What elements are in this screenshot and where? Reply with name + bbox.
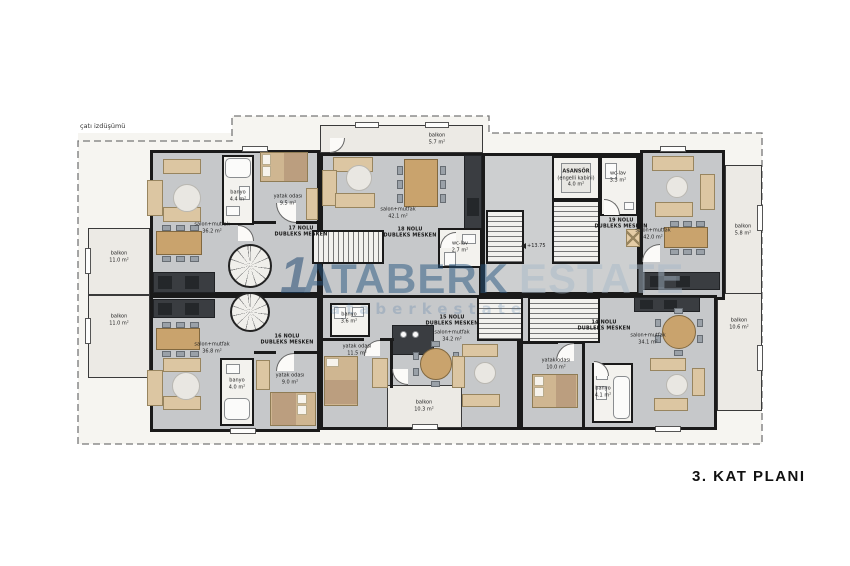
- chair: [440, 194, 446, 203]
- rug: [173, 184, 201, 212]
- chair: [696, 249, 705, 255]
- label-apt17-yatak: yatak odası9.5 m²: [274, 194, 303, 207]
- common-stairs: [486, 210, 524, 264]
- label-apt16-balkon: balkon11.0 m²: [109, 314, 129, 327]
- chair: [162, 256, 171, 262]
- chair: [162, 225, 171, 231]
- window-marker: [757, 205, 763, 231]
- dining-table: [156, 328, 200, 350]
- sofa: [335, 193, 375, 208]
- sofa: [147, 180, 163, 216]
- chair: [176, 351, 185, 357]
- wall: [390, 338, 393, 388]
- dining-table: [420, 348, 452, 380]
- spiral-stairs: [228, 244, 272, 288]
- stove: [158, 303, 172, 315]
- spiral-stairs: [230, 292, 270, 332]
- stove: [467, 198, 479, 216]
- rug: [172, 372, 200, 400]
- label-apt18-salon: salon+mutfak42.1 m²: [380, 207, 415, 220]
- label-apt16-banyo: banyo4.0 m²: [229, 378, 245, 391]
- label-elevator: ASANSÖR(engelli kabini)4.0 m²: [557, 168, 594, 188]
- sofa: [654, 398, 688, 411]
- balcony-apt14: [717, 293, 762, 411]
- balcony-apt16: [88, 295, 150, 378]
- chair: [162, 351, 171, 357]
- label-apt15-salon: salon+mutfak34.2 m²: [434, 330, 469, 343]
- sink-unit: [185, 276, 199, 289]
- label-apt17-balkon: balkon11.0 m²: [109, 251, 129, 264]
- kitchen-counter: [464, 155, 482, 233]
- blanket: [284, 153, 307, 181]
- pillow: [297, 405, 307, 415]
- pillow: [326, 358, 339, 367]
- wall: [252, 221, 276, 224]
- chair: [190, 256, 199, 262]
- bathtub: [225, 158, 251, 178]
- pillow: [534, 376, 544, 386]
- chair: [697, 335, 703, 343]
- label-apt15-yatak: yatak odası11.5 m²: [343, 344, 372, 357]
- sofa: [452, 356, 465, 388]
- wall: [582, 341, 585, 430]
- wall: [522, 341, 558, 344]
- window-marker: [655, 426, 681, 432]
- pillow: [297, 394, 307, 404]
- stove: [650, 276, 664, 287]
- label-apt18-balkon: balkon5.7 m²: [429, 133, 446, 146]
- rug: [346, 165, 372, 191]
- chair: [431, 381, 440, 387]
- chair: [413, 368, 419, 376]
- rug: [474, 362, 496, 384]
- window-marker: [85, 318, 91, 344]
- chair: [190, 322, 199, 328]
- label-apt16-salon: salon+mutfak36.8 m²: [194, 342, 229, 355]
- sink: [624, 202, 634, 210]
- label-apt16-yatak: yatak odası9.0 m²: [276, 373, 305, 386]
- sofa: [655, 202, 693, 217]
- pillow: [534, 387, 544, 397]
- chair: [397, 166, 403, 175]
- label-apt17-salon: salon+mutfak36.2 m²: [194, 222, 229, 235]
- chair: [440, 166, 446, 175]
- chair: [670, 249, 679, 255]
- pillow: [262, 166, 271, 177]
- chair: [683, 249, 692, 255]
- bathtub: [224, 398, 250, 420]
- sofa: [652, 156, 694, 171]
- chair: [440, 180, 446, 189]
- sink-unit: [185, 303, 199, 315]
- label-apt16: 16 NOLUDUBLEKS MESKEN: [261, 334, 314, 347]
- label-apt14-banyo: banyo4.1 m²: [595, 386, 611, 399]
- label-apt17: 17 NOLUDUBLEKS MESKEN: [275, 226, 328, 239]
- plan-title: 3. KAT PLANI: [692, 468, 806, 485]
- window-marker: [425, 122, 449, 128]
- window-marker: [412, 424, 438, 430]
- chair: [696, 221, 705, 227]
- sink-unit: [676, 276, 690, 287]
- chair: [674, 308, 683, 314]
- wardrobe: [306, 188, 318, 220]
- chair: [176, 322, 185, 328]
- label-apt14-balkon: balkon10.6 m²: [729, 318, 749, 331]
- window-marker: [355, 122, 379, 128]
- label-apt15-balkon: balkon10.3 m²: [414, 400, 434, 413]
- chair: [674, 350, 683, 356]
- window-marker: [660, 146, 686, 152]
- chair: [683, 221, 692, 227]
- blanket: [556, 375, 576, 407]
- chair: [655, 319, 661, 327]
- sofa: [650, 358, 686, 371]
- pillow: [262, 154, 271, 165]
- window-marker: [85, 248, 91, 274]
- chair: [162, 322, 171, 328]
- window-marker: [242, 146, 268, 152]
- wall: [322, 338, 364, 341]
- chair: [697, 319, 703, 327]
- toilet: [444, 252, 456, 266]
- wardrobe: [372, 358, 388, 388]
- stairs: [477, 297, 523, 341]
- wall: [296, 221, 320, 224]
- chair: [176, 256, 185, 262]
- bathtub: [613, 376, 630, 419]
- common-stairs: [552, 200, 600, 264]
- label-apt18: 18 NOLUDUBLEKS MESKEN: [384, 227, 437, 240]
- wall: [294, 351, 320, 354]
- sink: [226, 364, 240, 374]
- chair: [670, 221, 679, 227]
- sofa: [163, 358, 201, 372]
- dining-table: [156, 231, 202, 255]
- label-apt15-banyo: banyo3.6 m²: [341, 312, 357, 325]
- blanket: [325, 380, 357, 404]
- window-marker: [757, 345, 763, 371]
- label-apt15: 15 NOLUDUBLEKS MESKEN: [426, 315, 479, 328]
- stove-burner: [412, 331, 419, 338]
- sofa: [700, 174, 715, 210]
- chair: [413, 352, 419, 360]
- elevation-marker: +13.75: [521, 243, 546, 249]
- stove: [158, 276, 172, 289]
- elevation-arrow-icon: [521, 243, 526, 249]
- label-apt14: 14 NOLUDUBLEKS MESKEN: [578, 320, 631, 333]
- sofa: [692, 368, 705, 396]
- label-apt17-banyo: banyo4.4 m²: [230, 190, 246, 203]
- sink: [226, 206, 240, 216]
- sofa: [163, 159, 201, 174]
- sofa: [147, 370, 163, 406]
- label-apt18-wc: wc-lav2.7 m²: [452, 241, 468, 254]
- blanket: [272, 393, 296, 425]
- wall: [254, 351, 276, 354]
- chair: [397, 194, 403, 203]
- floor-plan-canvas: çatı izdüşümü: [0, 0, 850, 566]
- rug: [666, 374, 688, 396]
- label-apt14-salon: salon+mutfak34.1 m²: [630, 333, 665, 346]
- stove-burner: [400, 331, 407, 338]
- roof-projection-label: çatı izdüşümü: [80, 122, 125, 130]
- chair: [176, 225, 185, 231]
- rug: [666, 176, 688, 198]
- sofa: [462, 394, 500, 407]
- dining-table: [662, 315, 696, 349]
- dining-table: [404, 159, 438, 207]
- sofa: [462, 344, 498, 357]
- chair: [397, 180, 403, 189]
- label-apt19-salon: salon+mutfak42.0 m²: [635, 228, 670, 241]
- stove: [640, 300, 653, 309]
- window-marker: [230, 428, 256, 434]
- wardrobe: [256, 360, 270, 390]
- label-apt14-yatak: yatak odası10.0 m²: [542, 358, 571, 371]
- label-apt19-balkon: balkon5.8 m²: [735, 224, 752, 237]
- label-apt19-wc: wc-lav3.3 m²: [610, 171, 626, 184]
